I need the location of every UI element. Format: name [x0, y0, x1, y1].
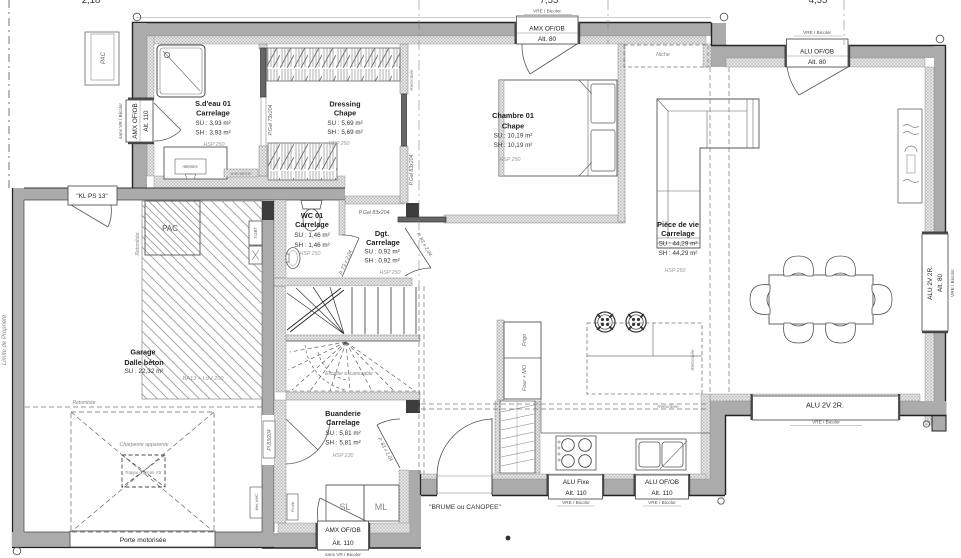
svg-text:Chambre 01: Chambre 01 [492, 111, 534, 120]
svg-text:A+B HSP210: A+B HSP210 [230, 172, 252, 176]
svg-text:Alt. 110: Alt. 110 [565, 490, 587, 497]
svg-text:HSP 250: HSP 250 [379, 270, 400, 276]
svg-text:PAC: PAC [101, 51, 107, 64]
svg-text:P.Gal 83x204: P.Gal 83x204 [359, 210, 390, 216]
svg-text:VRE / Bicolor: VRE / Bicolor [648, 500, 676, 505]
svg-text:Alt. 80: Alt. 80 [937, 273, 944, 292]
svg-text:Mét.VMC: Mét.VMC [254, 494, 259, 511]
svg-text:HSP 250: HSP 250 [299, 251, 320, 257]
svg-text:Pl.83/204: Pl.83/204 [267, 429, 273, 450]
svg-text:Carrelage: Carrelage [661, 229, 695, 238]
svg-text:sans VR / Bicolor: sans VR / Bicolor [325, 552, 361, 557]
svg-text:Retombée: Retombée [657, 404, 679, 409]
svg-text:AMX OF/OB: AMX OF/OB [529, 26, 565, 33]
svg-text:VRE / Bicolor: VRE / Bicolor [950, 269, 955, 297]
svg-text:SU : 10,19 m²: SU : 10,19 m² [494, 133, 533, 140]
svg-text:SL: SL [339, 502, 350, 512]
svg-text:SU : 44,29 m²: SU : 44,29 m² [659, 241, 698, 248]
svg-text:Alt. 80: Alt. 80 [808, 59, 827, 66]
svg-text:SU : 3,93 m²: SU : 3,93 m² [195, 120, 230, 127]
svg-text:ALU Fixe: ALU Fixe [563, 479, 590, 486]
svg-text:BA13 + LdV 200: BA13 + LdV 200 [183, 376, 225, 382]
svg-text:Carrelage: Carrelage [326, 418, 360, 427]
svg-text:Alt. 80: Alt. 80 [538, 36, 557, 43]
svg-text:Dressing: Dressing [329, 100, 360, 109]
svg-text:Four + MO: Four + MO [522, 364, 528, 391]
svg-text:VRE / Bicolor: VRE / Bicolor [562, 500, 590, 505]
svg-text:Alt. 110: Alt. 110 [651, 490, 673, 497]
svg-text:VRE / Bicolor: VRE / Bicolor [533, 9, 561, 14]
svg-text:P.Gal 83x204: P.Gal 83x204 [409, 155, 415, 186]
svg-text:SH : 0,92 m²: SH : 0,92 m² [364, 258, 399, 265]
svg-text:Charpente apparente: Charpente apparente [119, 442, 168, 448]
svg-text:Retombée: Retombée [409, 69, 414, 91]
svg-text:Trappe d'accès VS: Trappe d'accès VS [125, 470, 162, 475]
svg-text:Porte motorisée: Porte motorisée [120, 537, 167, 544]
svg-text:sans VR / Bicolor: sans VR / Bicolor [118, 103, 123, 139]
svg-text:ALU OF/OB: ALU OF/OB [800, 49, 834, 56]
svg-text:HSP 250: HSP 250 [328, 141, 349, 147]
svg-text:Dalle béton: Dalle béton [124, 358, 163, 367]
svg-text:Chape: Chape [502, 122, 524, 131]
svg-text:SU : 5,69 m²: SU : 5,69 m² [327, 120, 362, 127]
svg-text:Alt. 110: Alt. 110 [143, 110, 150, 132]
svg-text:Carrelage: Carrelage [196, 109, 230, 118]
svg-text:HSP 250: HSP 250 [499, 157, 520, 163]
svg-text:Limite de Propriété: Limite de Propriété [2, 314, 8, 365]
svg-text:Pièce de vie: Pièce de vie [657, 220, 699, 229]
svg-text:Carrelage: Carrelage [295, 220, 329, 229]
svg-text:Retombée: Retombée [690, 349, 695, 371]
svg-text:VRE / Bicolor: VRE / Bicolor [803, 30, 831, 35]
svg-text:4,55: 4,55 [809, 0, 828, 6]
svg-text:Escalier escamotable: Escalier escamotable [325, 371, 373, 377]
svg-text:Chape: Chape [334, 109, 356, 118]
svg-text:Retombée: Retombée [72, 400, 95, 406]
svg-text:SH : 44,29 m²: SH : 44,29 m² [659, 250, 698, 257]
svg-text:SU : 22,32 m²: SU : 22,32 m² [125, 368, 164, 375]
svg-text:SH : 3,93 m²: SH : 3,93 m² [195, 130, 230, 137]
svg-text:Retombée: Retombée [135, 232, 141, 255]
svg-text:SU : 5,81 m²: SU : 5,81 m² [325, 430, 360, 437]
svg-text:Dgt.: Dgt. [375, 229, 389, 238]
svg-text:SU : 0,92 m²: SU : 0,92 m² [364, 249, 399, 256]
svg-text:"BRUME ou CANOPEE": "BRUME ou CANOPEE" [429, 504, 501, 511]
svg-text:Buanderie: Buanderie [325, 409, 361, 418]
svg-text:HSP 250: HSP 250 [203, 142, 224, 148]
svg-text:SH : 5,69 m²: SH : 5,69 m² [327, 129, 362, 136]
svg-text:SH : 10,19 m²: SH : 10,19 m² [494, 142, 533, 149]
svg-text:"KL PS 13": "KL PS 13" [76, 193, 107, 200]
svg-text:VRE / Bicolor: VRE / Bicolor [812, 420, 840, 425]
svg-text:AMX OF/OB: AMX OF/OB [132, 103, 139, 139]
svg-text:Carrelage: Carrelage [366, 238, 400, 247]
svg-text:ML: ML [375, 502, 388, 512]
svg-text:HSP 250: HSP 250 [664, 268, 685, 274]
svg-text:Frigo: Frigo [522, 334, 528, 346]
svg-text:AMX OF/OB: AMX OF/OB [325, 527, 361, 534]
svg-text:7,55: 7,55 [540, 0, 559, 6]
svg-text:PAC: PAC [162, 224, 178, 233]
svg-text:2,18: 2,18 [82, 0, 101, 6]
svg-text:P.Gal 73x204: P.Gal 73x204 [268, 105, 274, 136]
svg-text:Attentes: Attentes [181, 164, 198, 169]
svg-text:Niche: Niche [656, 52, 670, 58]
svg-text:HSP 230: HSP 230 [332, 453, 353, 459]
svg-text:WC 01: WC 01 [301, 211, 323, 220]
svg-text:ALU 2V 2R.: ALU 2V 2R. [927, 266, 934, 300]
svg-text:SH : 1,46 m²: SH : 1,46 m² [294, 242, 329, 249]
svg-text:ALU OF/OB: ALU OF/OB [645, 479, 679, 486]
svg-text:Garage: Garage [130, 348, 155, 357]
svg-text:SH : 5,81 m²: SH : 5,81 m² [325, 440, 360, 447]
svg-text:Alt. 110: Alt. 110 [332, 540, 354, 547]
svg-text:Pl.o/b: Pl.o/b [290, 501, 295, 512]
svg-text:S.d'eau 01: S.d'eau 01 [195, 99, 231, 108]
svg-text:ALU 2V 2R.: ALU 2V 2R. [806, 401, 844, 410]
svg-text:SU : 1,46 m²: SU : 1,46 m² [294, 232, 329, 239]
svg-text:T.GBT: T.GBT [253, 227, 258, 239]
